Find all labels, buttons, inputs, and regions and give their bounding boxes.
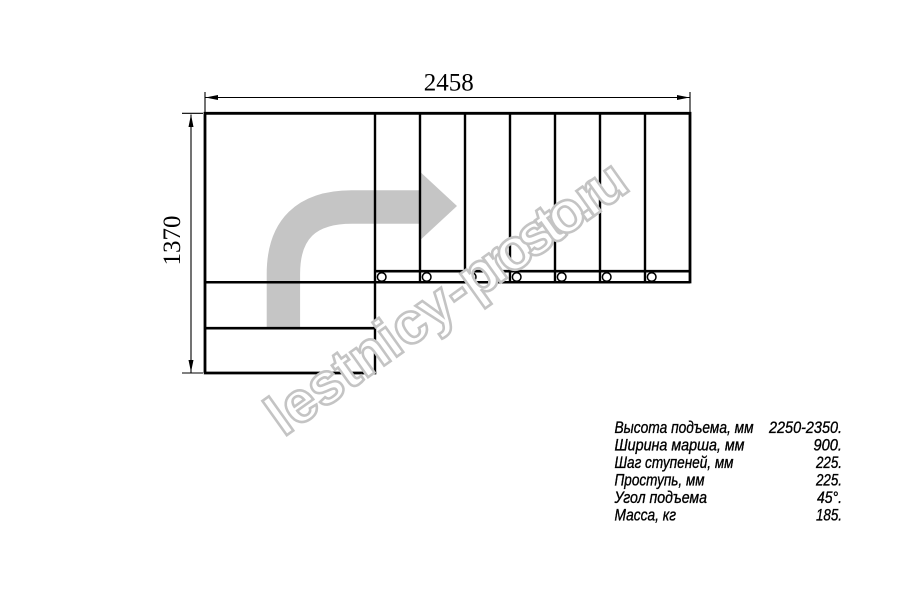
- svg-text:2458: 2458: [424, 70, 474, 97]
- svg-text:Проступь, мм: Проступь, мм: [615, 472, 705, 490]
- svg-text:2250-2350.: 2250-2350.: [768, 419, 842, 437]
- svg-text:1370: 1370: [159, 216, 186, 266]
- svg-text:Масса, кг: Масса, кг: [615, 507, 677, 525]
- svg-text:185.: 185.: [816, 507, 842, 525]
- svg-text:225.: 225.: [815, 454, 842, 472]
- svg-text:Ширина марша, мм: Ширина марша, мм: [615, 437, 745, 455]
- svg-text:225.: 225.: [815, 472, 842, 490]
- svg-text:Угол подъема: Угол подъема: [614, 489, 707, 507]
- svg-text:45°.: 45°.: [817, 489, 842, 507]
- svg-text:900.: 900.: [814, 437, 843, 455]
- svg-text:Шаг ступеней, мм: Шаг ступеней, мм: [615, 454, 734, 472]
- svg-text:Высота подъема, мм: Высота подъема, мм: [615, 419, 754, 437]
